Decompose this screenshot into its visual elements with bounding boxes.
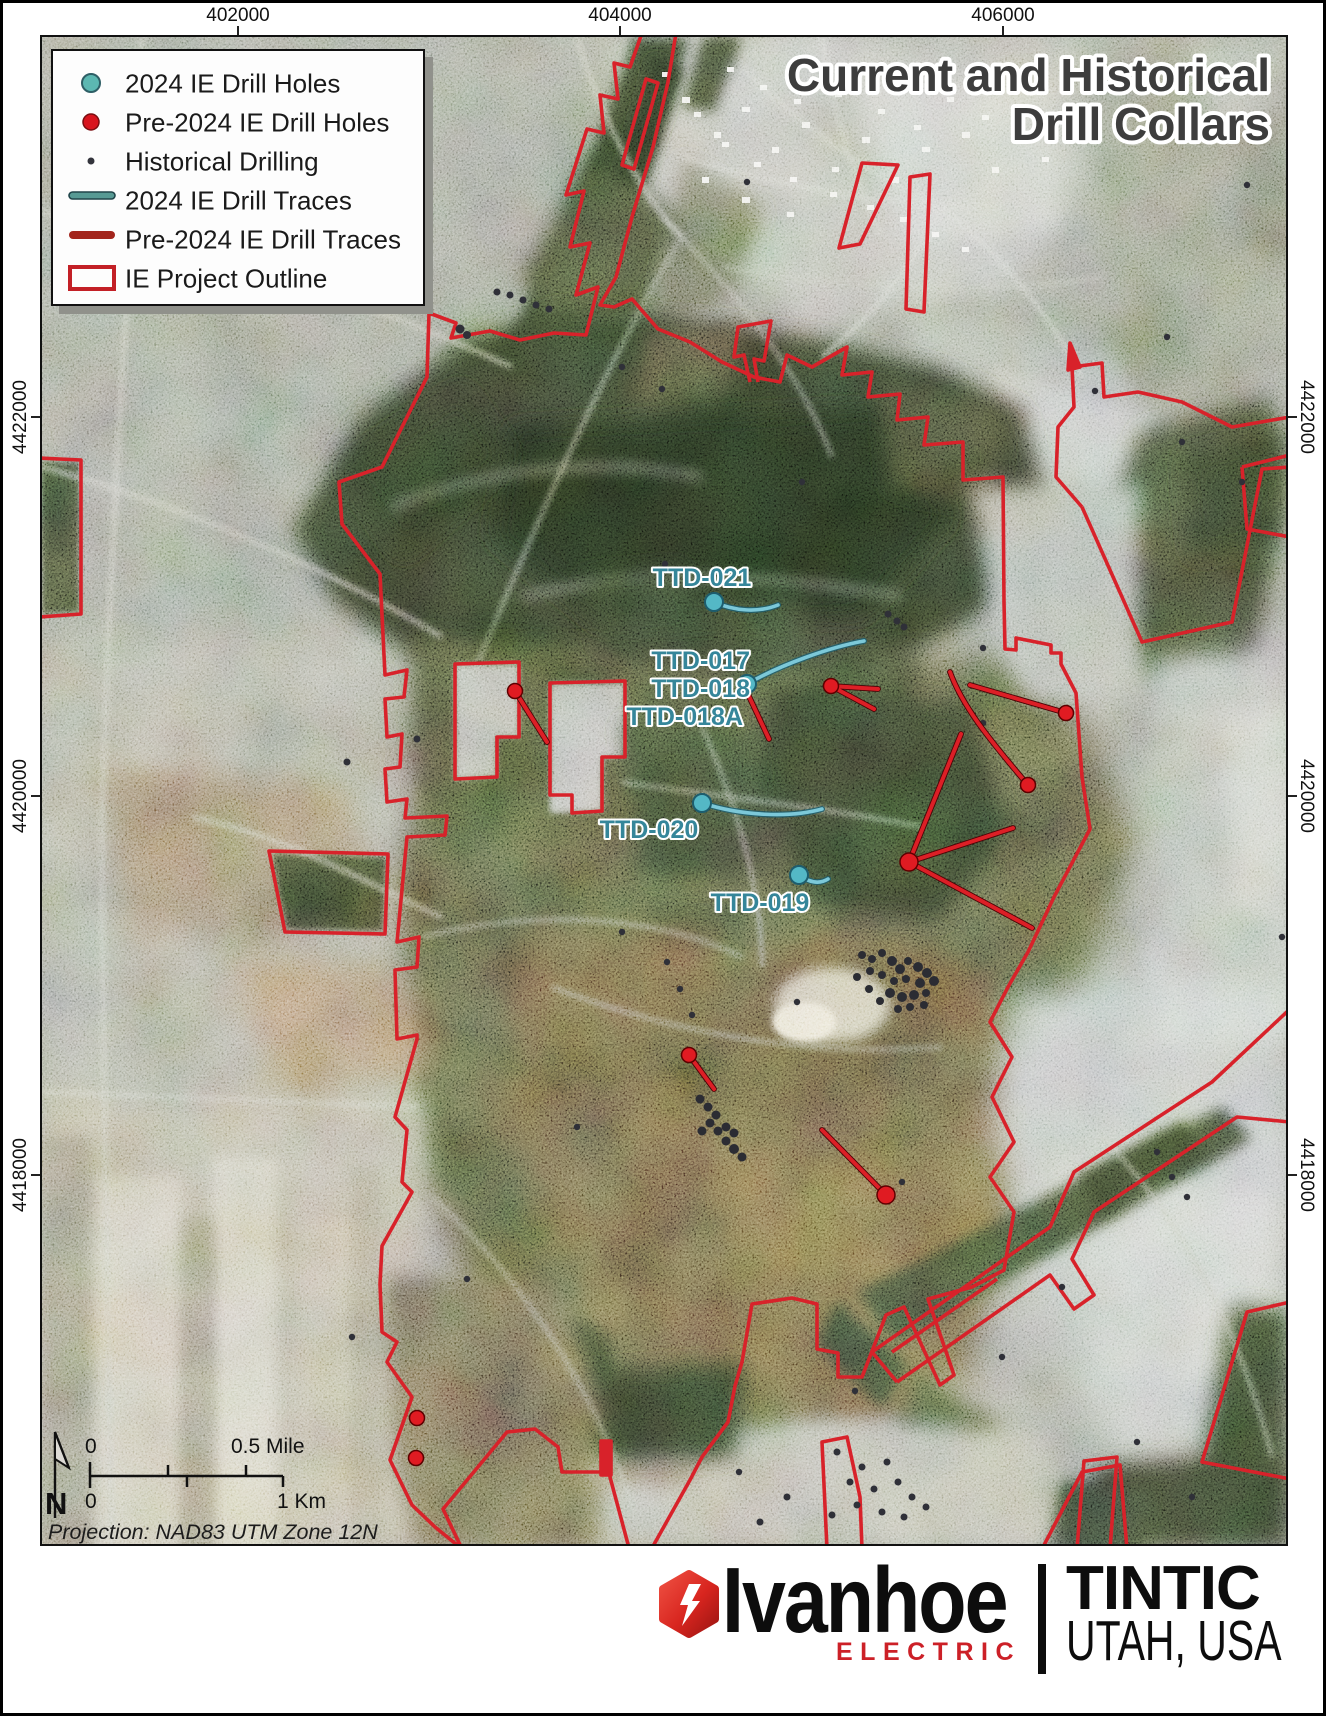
svg-text:ELECTRIC: ELECTRIC	[836, 1638, 1021, 1666]
svg-text:N: N	[45, 1486, 67, 1521]
svg-text:TTD-018: TTD-018	[651, 675, 750, 703]
svg-text:0: 0	[85, 1490, 97, 1513]
svg-text:Current and Historical: Current and Historical	[787, 49, 1270, 101]
svg-text:Projection: NAD83 UTM Zone 12N: Projection: NAD83 UTM Zone 12N	[48, 1520, 378, 1544]
svg-text:Drill Collars: Drill Collars	[1012, 98, 1270, 150]
svg-text:0.5 Mile: 0.5 Mile	[231, 1435, 305, 1458]
svg-text:UTAH, USA: UTAH, USA	[1066, 1610, 1282, 1673]
svg-text:0: 0	[85, 1435, 97, 1458]
svg-text:Ivanhoe: Ivanhoe	[722, 1549, 1006, 1652]
svg-text:TTD-021: TTD-021	[653, 564, 752, 592]
svg-text:TTD-017: TTD-017	[651, 647, 750, 675]
svg-text:TTD-019: TTD-019	[711, 889, 810, 917]
svg-text:TTD-020: TTD-020	[600, 816, 699, 844]
svg-text:1 Km: 1 Km	[277, 1490, 326, 1513]
svg-text:TTD-018A: TTD-018A	[626, 703, 743, 731]
